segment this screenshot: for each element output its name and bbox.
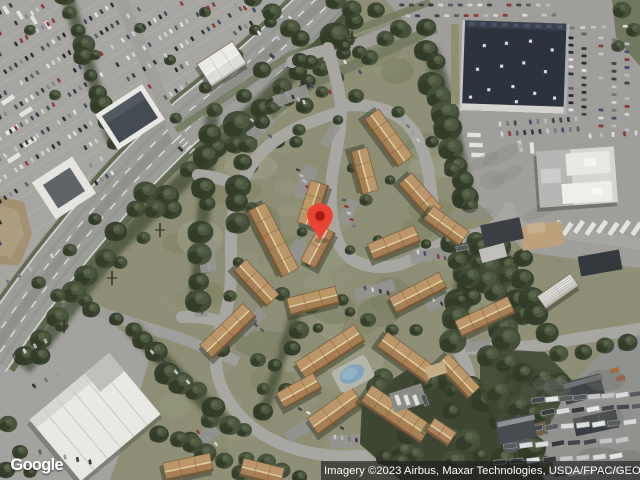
svg-text:Imagery ©2023 Airbus, Maxar Te: Imagery ©2023 Airbus, Maxar Technologies… xyxy=(324,465,640,477)
svg-text:Google: Google xyxy=(11,456,64,474)
